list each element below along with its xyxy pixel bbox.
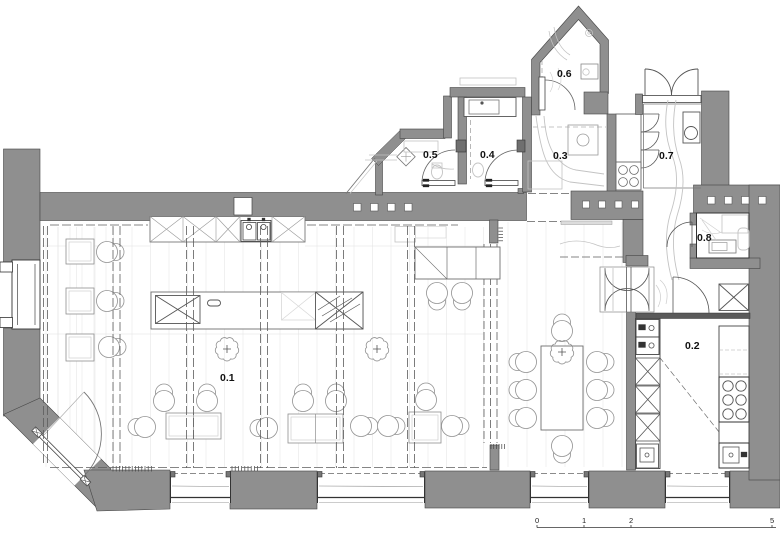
svg-text:0.1: 0.1 (220, 372, 235, 384)
svg-text:2: 2 (629, 516, 633, 525)
svg-text:0.4: 0.4 (480, 149, 495, 161)
svg-text:0.7: 0.7 (659, 150, 674, 162)
svg-text:1: 1 (582, 516, 586, 525)
svg-text:0: 0 (535, 516, 539, 525)
svg-text:0.5: 0.5 (423, 149, 438, 161)
svg-text:0.2: 0.2 (685, 340, 700, 352)
svg-text:0.6: 0.6 (557, 68, 572, 80)
svg-text:0.3: 0.3 (553, 150, 568, 162)
svg-text:0.8: 0.8 (697, 232, 712, 244)
svg-text:5: 5 (770, 516, 774, 525)
